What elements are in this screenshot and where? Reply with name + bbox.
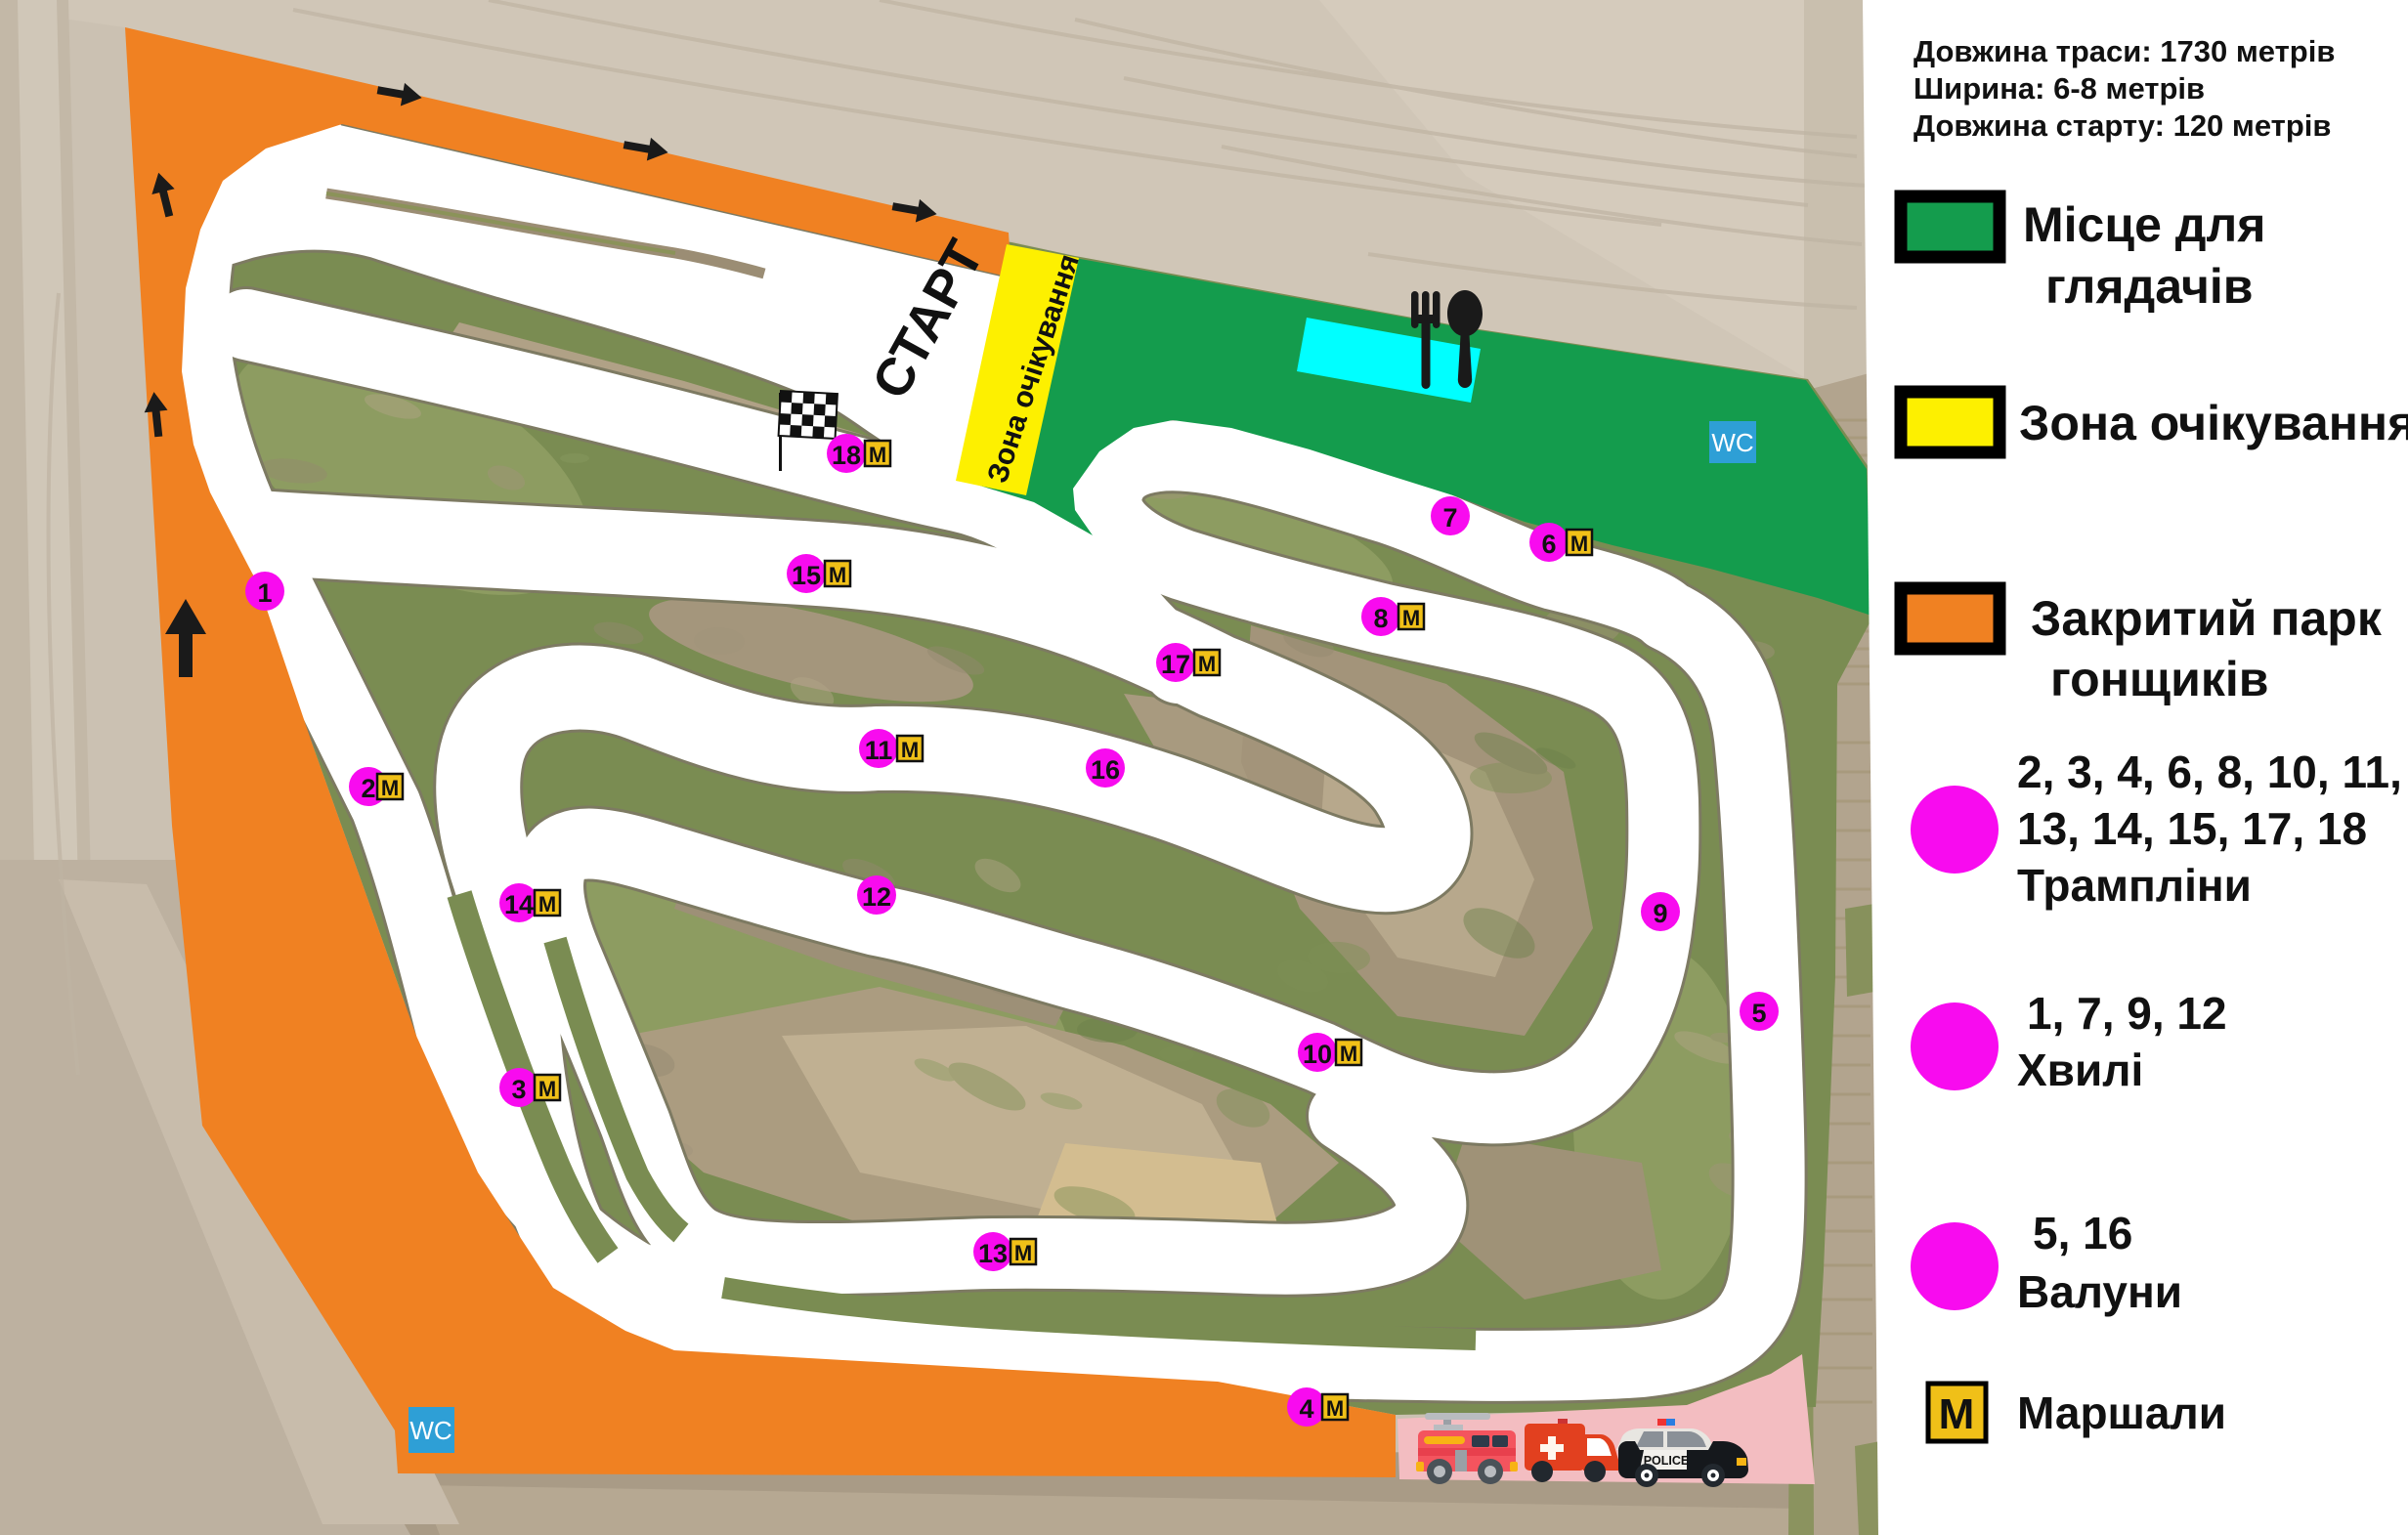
svg-text:Довжина старту: 120 метрів: Довжина старту: 120 метрів [1913,108,2331,143]
svg-text:17: 17 [1161,650,1190,679]
svg-text:M: M [381,776,399,800]
svg-text:M: M [1402,606,1420,630]
svg-text:M: M [1570,532,1588,556]
svg-text:1, 7, 9, 12: 1, 7, 9, 12 [2027,988,2227,1039]
svg-text:M: M [1014,1241,1032,1265]
svg-text:3: 3 [511,1075,526,1104]
svg-text:13: 13 [978,1239,1008,1268]
svg-text:M: M [1326,1396,1344,1421]
svg-text:Місце для: Місце для [2023,197,2265,252]
svg-text:WC: WC [409,1416,451,1445]
svg-text:16: 16 [1091,755,1120,785]
svg-text:1: 1 [257,578,272,608]
svg-text:Трампліни: Трампліни [2017,860,2252,911]
svg-text:Ширина: 6-8 метрів: Ширина: 6-8 метрів [1913,71,2205,106]
svg-text:5, 16: 5, 16 [2033,1208,2132,1258]
svg-text:2, 3, 4, 6, 8, 10, 11,: 2, 3, 4, 6, 8, 10, 11, [2017,746,2402,797]
svg-text:Хвилі: Хвилі [2017,1045,2143,1095]
svg-text:4: 4 [1299,1394,1313,1424]
svg-text:Валуни: Валуни [2017,1266,2182,1317]
svg-text:12: 12 [862,882,891,912]
svg-text:M: M [901,738,919,762]
svg-text:M: M [1939,1390,1975,1438]
svg-text:Зона очікування: Зона очікування [2019,396,2408,450]
svg-text:Закритий парк: Закритий парк [2031,591,2383,646]
svg-text:15: 15 [792,561,821,590]
svg-text:M: M [829,563,846,587]
svg-text:M: M [538,1077,556,1101]
svg-text:8: 8 [1373,604,1388,633]
svg-text:9: 9 [1653,899,1667,928]
svg-text:2: 2 [361,774,375,803]
svg-text:M: M [538,892,556,917]
svg-text:10: 10 [1303,1040,1332,1069]
svg-text:гонщиків: гонщиків [2050,652,2269,706]
svg-text:18: 18 [832,441,861,470]
svg-text:глядачів: глядачів [2045,259,2253,314]
svg-text:M: M [1340,1042,1357,1066]
svg-text:Довжина траси: 1730 метрів: Довжина траси: 1730 метрів [1913,34,2335,68]
svg-text:WC: WC [1711,428,1753,457]
svg-text:M: M [869,443,886,467]
svg-text:7: 7 [1442,503,1457,533]
svg-text:Маршали: Маршали [2017,1387,2226,1438]
svg-text:M: M [1198,652,1216,676]
svg-text:11: 11 [865,736,893,765]
svg-text:13, 14, 15, 17, 18: 13, 14, 15, 17, 18 [2017,803,2367,854]
svg-text:14: 14 [504,890,534,919]
svg-text:5: 5 [1751,999,1766,1028]
svg-text:6: 6 [1541,530,1556,559]
